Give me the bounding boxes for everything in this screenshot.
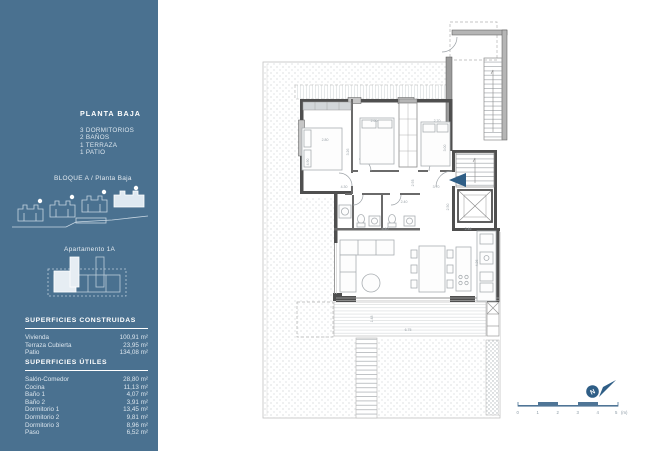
dimension-label: 2.46 xyxy=(465,227,472,231)
brochure-page: PLANTA BAJA 3 DORMITORIOS 2 BAÑOS 1 TERR… xyxy=(0,0,645,451)
scale-unit-label: (m) xyxy=(621,410,628,415)
dimension-label: 3.70 xyxy=(433,185,440,189)
kitchen-counter-icon xyxy=(477,231,496,301)
planting-strip xyxy=(486,340,499,415)
dining-table-icon xyxy=(411,246,453,292)
scale-tick-label: 1 xyxy=(537,410,540,415)
dimension-label: 2.80 xyxy=(322,138,329,142)
toilet-icon xyxy=(388,215,396,228)
scale-tick-label: 2 xyxy=(557,410,560,415)
dimension-label: 2.50 xyxy=(446,204,450,211)
sink-icon xyxy=(369,216,380,226)
scale-tick-label: 0 xyxy=(517,410,520,415)
pergola-slats xyxy=(295,85,450,99)
dimension-label: 2.60 xyxy=(371,119,378,123)
floor-plan-svg: 2.80 2.60 2.70 3.26 3.00 4.90 4.30 3.70 … xyxy=(0,0,645,451)
dimension-label: 4.30 xyxy=(341,185,348,189)
dimension-label: 2.70 xyxy=(434,119,441,123)
washer-icon xyxy=(339,205,351,218)
garden-walkway xyxy=(356,338,377,418)
scale-bar: 0 1 2 3 4 5 (m) xyxy=(517,402,629,415)
scale-tick-label: 3 xyxy=(577,410,580,415)
bed-icon xyxy=(360,118,394,164)
dimension-label: 2.40 xyxy=(401,200,408,204)
dimension-label: 3.00 xyxy=(443,145,447,152)
dimension-label: 8.40 xyxy=(382,227,389,231)
dimension-label: 4.26 xyxy=(475,260,479,267)
terrace-store-cell xyxy=(487,302,499,336)
dimension-label: 6.75 xyxy=(405,328,412,332)
wardrobe-closet xyxy=(303,102,351,110)
pouf-icon xyxy=(362,274,380,292)
bed-icon xyxy=(421,122,450,166)
dimension-label: 4.90 xyxy=(306,159,310,166)
scale-tick-label: 4 xyxy=(597,410,600,415)
dimension-label: 1.48 xyxy=(370,316,374,323)
sink-icon xyxy=(404,216,415,226)
kitchen-island-icon xyxy=(456,247,471,291)
elevator-shaft xyxy=(458,190,492,222)
scale-tick-label: 5 xyxy=(615,410,618,415)
dimension-label: 2.93 xyxy=(411,180,415,187)
wardrobe-closet xyxy=(399,99,417,167)
dimension-label: 3.26 xyxy=(346,149,350,156)
toilet-icon xyxy=(357,215,365,228)
north-arrow-icon: N xyxy=(586,380,616,398)
